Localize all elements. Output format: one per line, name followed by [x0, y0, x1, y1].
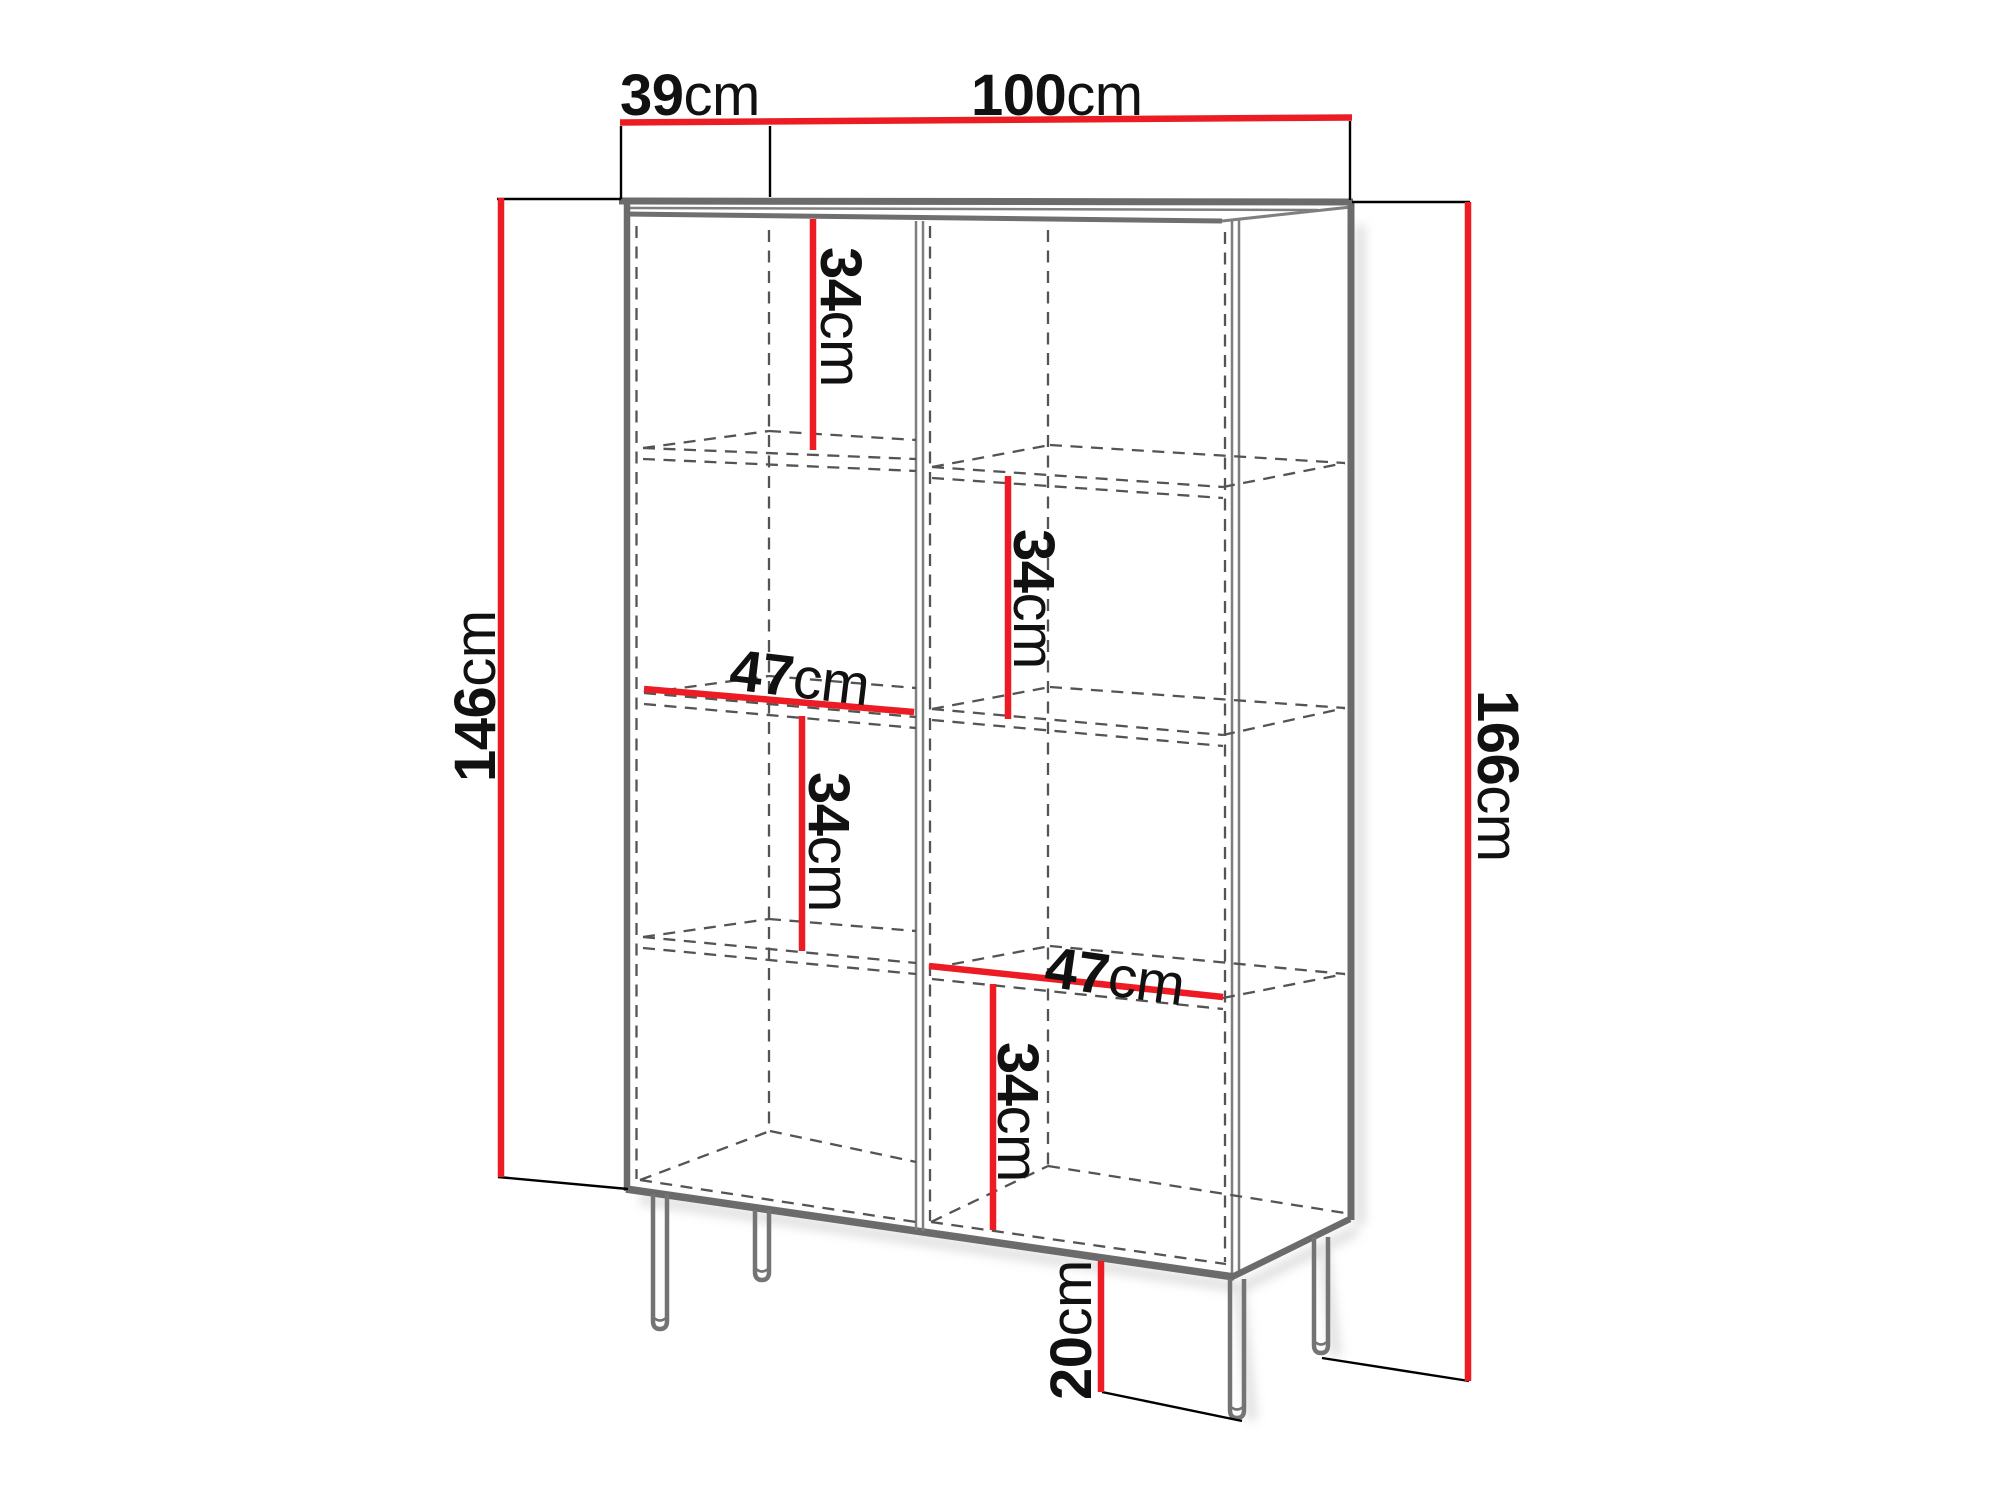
- svg-text:34cm: 34cm: [985, 1042, 1050, 1182]
- svg-text:146cm: 146cm: [443, 610, 508, 782]
- svg-text:166cm: 166cm: [1465, 690, 1530, 862]
- svg-text:39cm: 39cm: [620, 63, 760, 128]
- svg-text:100cm: 100cm: [971, 63, 1143, 128]
- svg-text:34cm: 34cm: [796, 772, 861, 912]
- svg-text:20cm: 20cm: [1039, 1260, 1104, 1400]
- svg-text:34cm: 34cm: [808, 247, 873, 387]
- svg-text:34cm: 34cm: [1001, 529, 1066, 669]
